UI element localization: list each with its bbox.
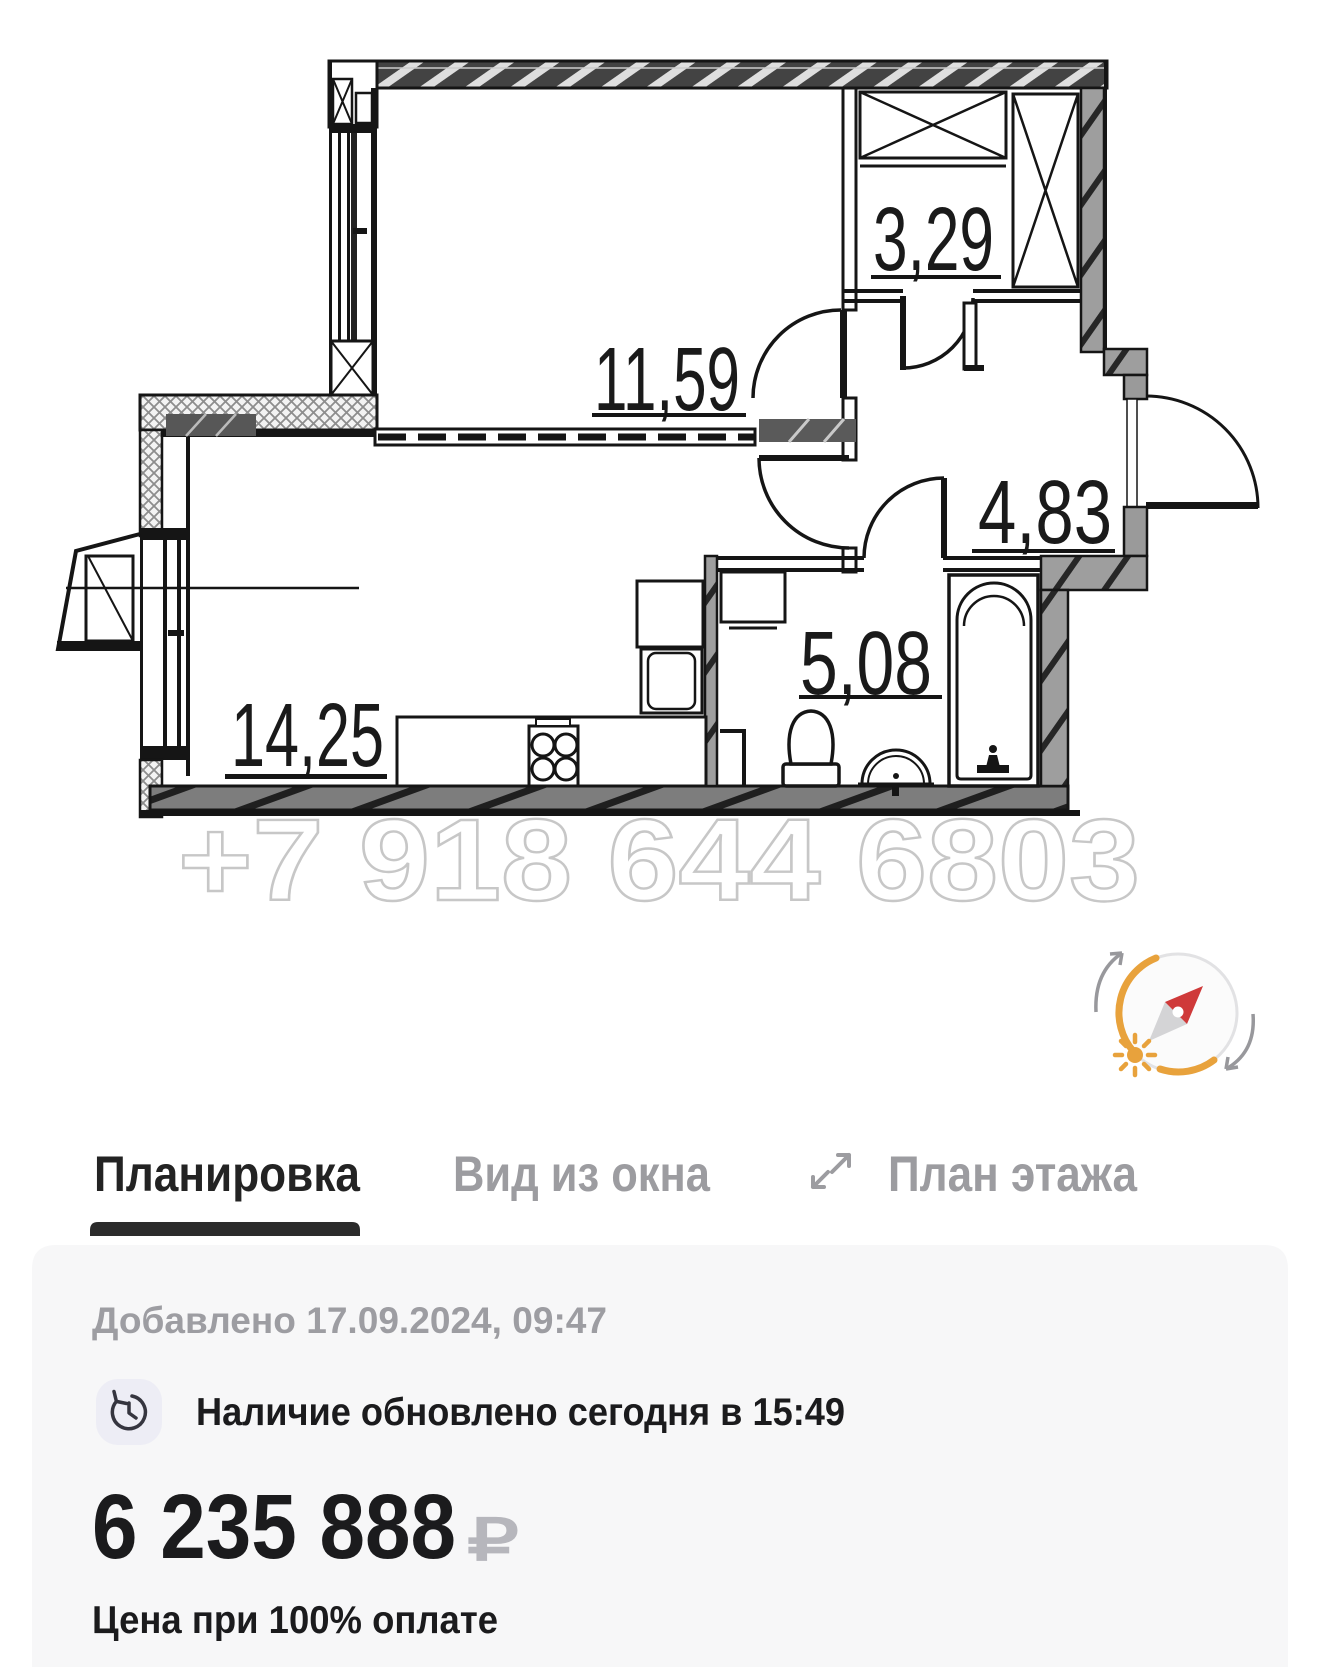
svg-text:₽: ₽ bbox=[467, 1508, 519, 1573]
svg-text:Добавлено 17.09.2024, 09:47: Добавлено 17.09.2024, 09:47 bbox=[92, 1300, 607, 1341]
svg-text:Вид из окна: Вид из окна bbox=[453, 1146, 711, 1202]
svg-text:6 235 888: 6 235 888 bbox=[92, 1476, 456, 1578]
svg-text:14,25: 14,25 bbox=[231, 686, 384, 786]
svg-text:План этажа: План этажа bbox=[888, 1146, 1138, 1202]
svg-text:Цена при 100% оплате: Цена при 100% оплате bbox=[92, 1599, 498, 1642]
svg-text:Планировка: Планировка bbox=[94, 1146, 361, 1202]
svg-text:Наличие обновлено сегодня в 15: Наличие обновлено сегодня в 15:49 bbox=[196, 1391, 845, 1434]
svg-text:4,83: 4,83 bbox=[978, 463, 1112, 563]
svg-text:+7 918 644 6803: +7 918 644 6803 bbox=[178, 795, 1140, 925]
